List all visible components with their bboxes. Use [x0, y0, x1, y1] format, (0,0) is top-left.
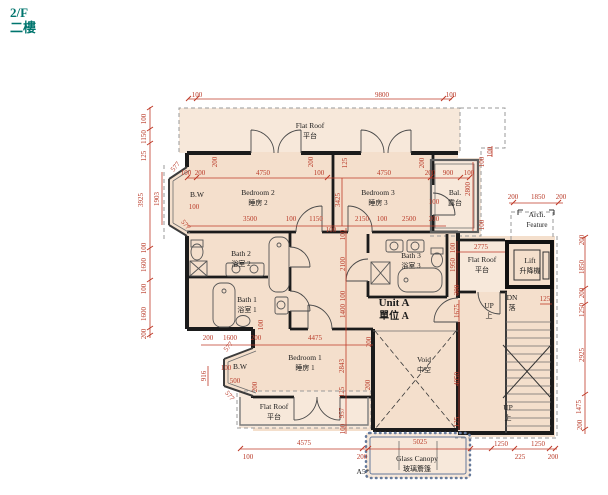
- dim-4750: 4750: [377, 169, 392, 177]
- dim-5025: 5025: [413, 438, 428, 446]
- dim-100: 100: [181, 169, 192, 177]
- dim-100: 100: [464, 169, 475, 177]
- dim-3500: 3500: [243, 215, 258, 223]
- dim-100: 100: [429, 198, 440, 206]
- dim-200: 200: [556, 193, 567, 201]
- dim-500: 500: [230, 377, 241, 385]
- dim-100: 100: [314, 169, 325, 177]
- bedroom-1-cn: 睡房 1: [295, 363, 315, 372]
- dim-200: 200: [578, 234, 586, 245]
- bedroom-3: Bedroom 3: [361, 188, 395, 197]
- dim-200: 200: [307, 156, 315, 167]
- bedroom-3-cn: 睡房 3: [368, 198, 388, 207]
- bath-3: Bath 3: [401, 251, 421, 260]
- bay-window-upper: B.W: [190, 190, 205, 199]
- dim-916: 916: [200, 370, 208, 381]
- dim-3425: 3425: [334, 193, 342, 208]
- dim-100: 100: [339, 423, 347, 434]
- dim-1150: 1150: [140, 130, 148, 144]
- dim-100: 100: [478, 156, 486, 167]
- dim-957: 957: [338, 407, 346, 418]
- dim-1600: 1600: [140, 258, 148, 273]
- dim-100: 100: [140, 113, 148, 124]
- dim-200: 200: [508, 193, 519, 201]
- up-upper-cn: 上: [486, 311, 493, 320]
- dim-200: 200: [576, 419, 584, 430]
- flat-roof-top-cn: 平台: [303, 131, 317, 140]
- bedroom-2: Bedroom 2: [241, 188, 275, 197]
- dim-2150: 2150: [355, 215, 370, 223]
- dim-100: 100: [339, 229, 347, 240]
- flat-roof-lift-cn: 平台: [475, 265, 489, 274]
- dim-100: 100: [221, 364, 232, 372]
- dim-1150: 1150: [309, 215, 323, 223]
- dim-1600: 1600: [140, 307, 148, 322]
- dim-1475: 1475: [575, 400, 583, 415]
- dim-100: 100: [377, 215, 388, 223]
- dim-1850: 1850: [578, 260, 586, 275]
- bath-1-cn: 浴室 1: [237, 305, 257, 314]
- up-upper: UP: [484, 301, 494, 310]
- dim-200: 200: [418, 157, 426, 168]
- lift-cn: 升降機: [520, 266, 541, 275]
- dim-100: 100: [478, 219, 486, 230]
- dim-200: 200: [578, 287, 586, 298]
- dim-125: 125: [453, 416, 461, 427]
- dim-577: 577: [223, 389, 236, 403]
- dim-2500: 2500: [402, 215, 417, 223]
- dim-100: 100: [192, 91, 203, 99]
- unit-a: Unit A: [379, 297, 410, 309]
- dim-900: 900: [443, 169, 454, 177]
- dim-2800: 2800: [464, 182, 472, 197]
- bath-2: Bath 2: [231, 249, 251, 258]
- dim-100: 100: [446, 91, 457, 99]
- dim-125: 125: [140, 150, 148, 161]
- bay-window-lower: B.W: [233, 362, 248, 371]
- dim-4575: 4575: [297, 439, 312, 447]
- note-a5: A5*: [357, 467, 370, 476]
- dim-200: 200: [429, 215, 440, 223]
- dim-300: 300: [453, 284, 461, 295]
- dim-1850: 1850: [531, 193, 546, 201]
- dim-1675: 1675: [453, 304, 461, 319]
- void-cn: 中空: [417, 365, 431, 374]
- dim-200: 200: [251, 381, 259, 392]
- dim-200: 200: [203, 334, 214, 342]
- dim-2775: 2775: [474, 243, 489, 251]
- glass-canopy-cn: 玻璃簷篷: [403, 464, 431, 473]
- dim-3925: 3925: [137, 193, 145, 208]
- dim-4750: 4750: [256, 169, 271, 177]
- dim-100: 100: [140, 283, 148, 294]
- dim-100: 100: [326, 226, 337, 234]
- unit-a-cn: 單位 A: [379, 309, 409, 322]
- dim-1250: 1250: [494, 440, 509, 448]
- dn-upper: DN: [507, 293, 518, 302]
- dim-200: 200: [365, 336, 373, 347]
- up-lower: UP: [503, 403, 513, 412]
- arch-feature: Arch.: [529, 210, 546, 219]
- dim-1903: 1903: [153, 192, 161, 207]
- dim-200: 200: [357, 453, 368, 461]
- bath-3-cn: 浴室 3: [401, 261, 421, 270]
- dim-125: 125: [540, 295, 551, 303]
- bath-2-cn: 浴室 2: [231, 259, 251, 268]
- flat-roof-bottom-cn: 平台: [267, 412, 281, 421]
- balcony-cn: 露台: [448, 198, 462, 207]
- floor-plan: Flat Roof平台Bedroom 2睡房 2Bedroom 3睡房 3Bal…: [0, 0, 608, 490]
- dim-1600: 1600: [223, 334, 238, 342]
- dim-9800: 9800: [375, 91, 390, 99]
- dim-125: 125: [341, 157, 349, 168]
- flat-roof-lift: Flat Roof: [468, 255, 497, 264]
- dim-100: 100: [257, 319, 265, 330]
- dim-200: 200: [195, 169, 206, 177]
- dim-4475: 4475: [308, 334, 323, 342]
- dim-100: 100: [243, 453, 254, 461]
- dim-100: 100: [486, 146, 494, 157]
- floor-title-cn: 二樓: [10, 21, 36, 36]
- floor-title: 2/F 二樓: [10, 6, 36, 36]
- bedroom-2-cn: 睡房 2: [248, 198, 268, 207]
- dim-125: 125: [338, 386, 346, 397]
- flat-roof-top: Flat Roof: [296, 121, 325, 130]
- dim-225: 225: [515, 453, 526, 461]
- dim-1400: 1400: [339, 304, 347, 319]
- arch-feature-cn: Feature: [527, 221, 548, 229]
- dim-2843: 2843: [338, 359, 346, 374]
- dim-100: 100: [189, 203, 200, 211]
- lift: Lift: [524, 256, 536, 265]
- dim-4050: 4050: [453, 372, 461, 387]
- dim-200: 200: [425, 169, 436, 177]
- dim-100: 100: [449, 242, 457, 253]
- dn-upper-cn: 落: [509, 303, 516, 312]
- bedroom-1: Bedroom 1: [288, 353, 322, 362]
- dim-2925: 2925: [578, 348, 586, 363]
- floor-fills: [169, 108, 555, 478]
- balcony: Bal.: [449, 188, 461, 197]
- flat-roof-bottom: Flat Roof: [260, 402, 289, 411]
- dim-2100: 2100: [339, 257, 347, 272]
- void: Void: [417, 355, 431, 364]
- dim-200: 200: [140, 328, 148, 339]
- floor-title-en: 2/F: [10, 6, 36, 21]
- dim-200: 200: [211, 156, 219, 167]
- bath-1: Bath 1: [237, 295, 257, 304]
- dim-1250: 1250: [531, 440, 546, 448]
- dim-100: 100: [339, 290, 347, 301]
- up-lower-cn: 上: [505, 413, 512, 422]
- dim-1950: 1950: [449, 258, 457, 273]
- dim-200: 200: [364, 379, 372, 390]
- dim-200: 200: [251, 334, 262, 342]
- dim-100: 100: [140, 242, 148, 253]
- dim-100: 100: [286, 215, 297, 223]
- dim-200: 200: [548, 453, 559, 461]
- dim-1250: 1250: [578, 303, 586, 318]
- glass-canopy: Glass Canopy: [396, 454, 438, 463]
